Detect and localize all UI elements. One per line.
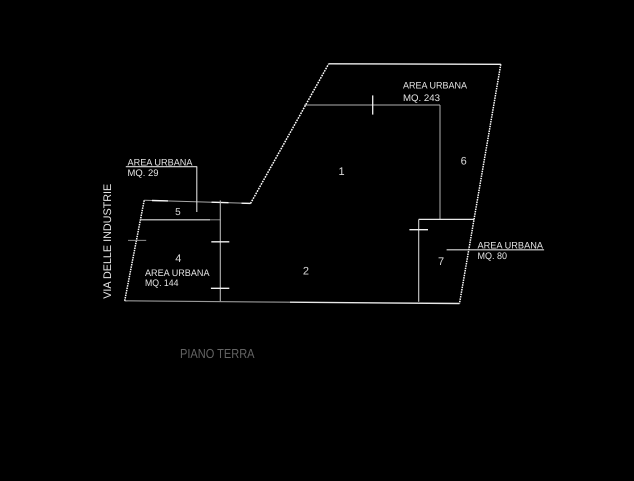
svg-text:PIANO TERRA: PIANO TERRA (180, 346, 255, 361)
svg-text:2: 2 (303, 265, 309, 277)
svg-text:AREA URBANA: AREA URBANA (403, 81, 468, 92)
svg-text:7: 7 (438, 256, 444, 268)
svg-text:1: 1 (338, 166, 344, 178)
svg-text:MQ. 144: MQ. 144 (145, 278, 179, 289)
svg-text:MQ. 29: MQ. 29 (128, 168, 159, 179)
svg-text:4: 4 (175, 253, 181, 265)
svg-text:6: 6 (461, 156, 467, 168)
svg-text:MQ. 80: MQ. 80 (478, 251, 508, 262)
svg-text:MQ. 243: MQ. 243 (403, 93, 440, 104)
svg-text:5: 5 (175, 207, 181, 218)
svg-text:AREA URBANA: AREA URBANA (128, 157, 194, 168)
svg-text:AREA URBANA: AREA URBANA (478, 241, 544, 252)
svg-text:VIA DELLE INDUSTRIE: VIA DELLE INDUSTRIE (102, 184, 114, 299)
